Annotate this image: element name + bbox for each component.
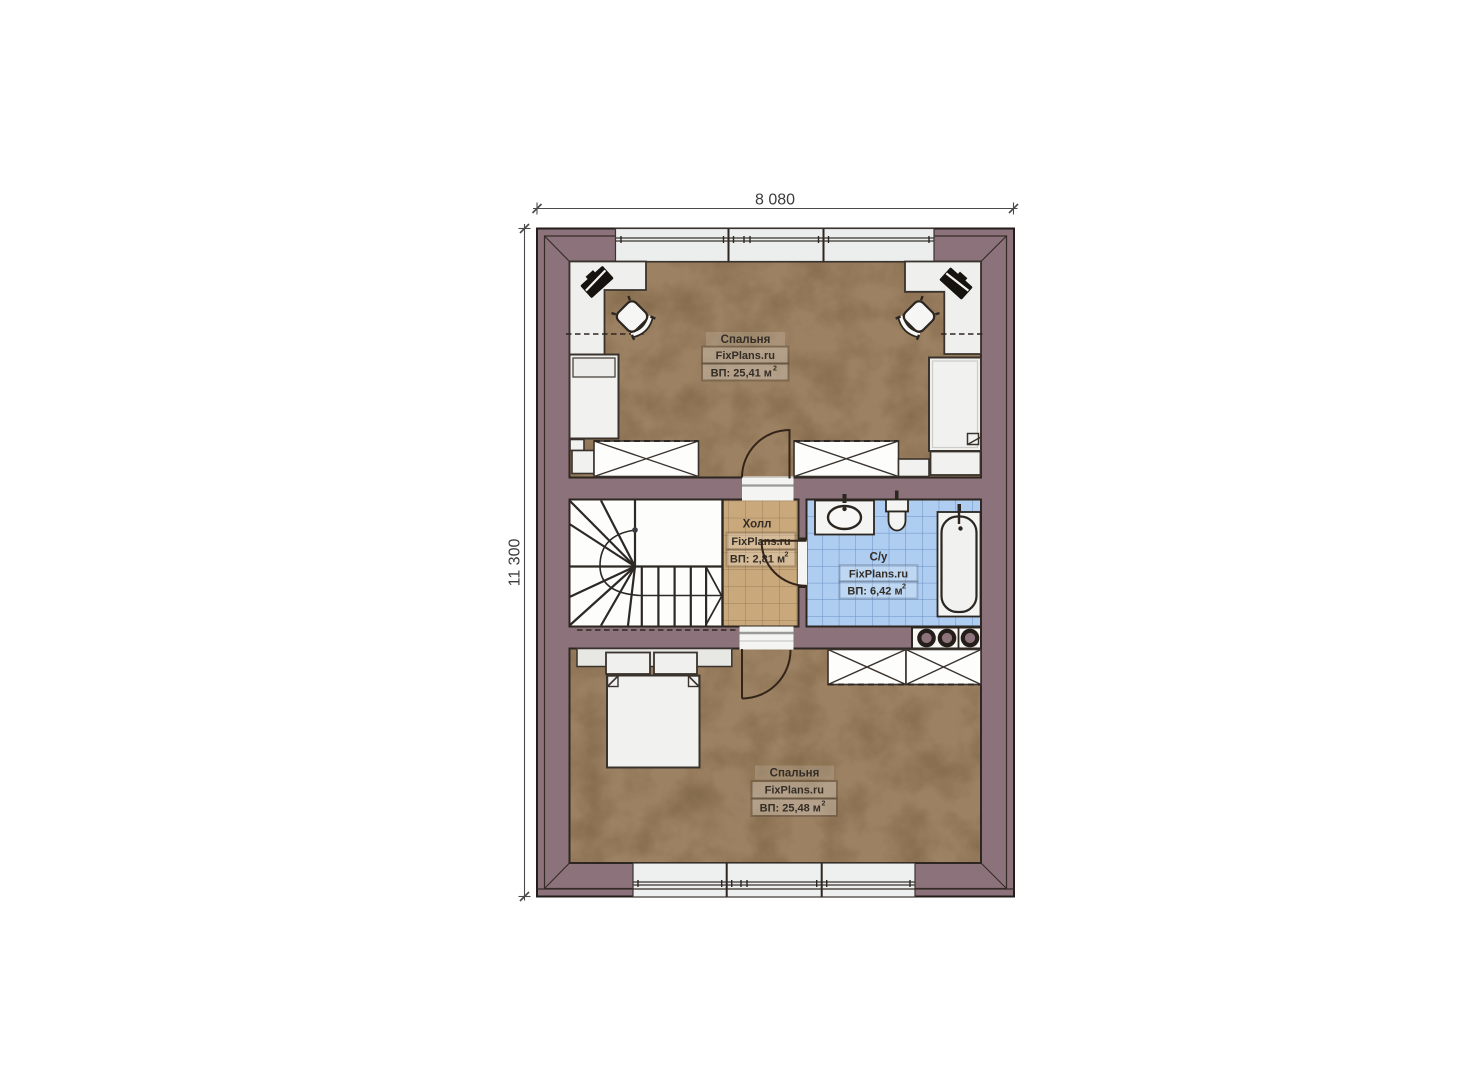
svg-text:2: 2 xyxy=(902,584,906,591)
svg-text:ВП: 2,81 м: ВП: 2,81 м xyxy=(730,554,785,566)
svg-text:2: 2 xyxy=(822,801,826,808)
svg-text:Спальня: Спальня xyxy=(770,768,820,780)
svg-text:ВП: 6,42 м: ВП: 6,42 м xyxy=(847,586,902,598)
svg-text:С/у: С/у xyxy=(870,552,889,564)
svg-text:11 300: 11 300 xyxy=(507,539,524,587)
svg-text:2: 2 xyxy=(785,552,789,559)
svg-text:ВП: 25,41 м: ВП: 25,41 м xyxy=(711,368,772,380)
svg-text:FixPlans.ru: FixPlans.ru xyxy=(716,350,775,362)
svg-text:FixPlans.ru: FixPlans.ru xyxy=(765,785,824,797)
svg-text:Спальня: Спальня xyxy=(721,334,771,346)
svg-text:ВП: 25,48 м: ВП: 25,48 м xyxy=(760,803,821,815)
svg-text:FixPlans.ru: FixPlans.ru xyxy=(849,569,908,581)
svg-text:2: 2 xyxy=(773,366,777,373)
svg-text:8 080: 8 080 xyxy=(755,192,795,209)
svg-text:Холл: Холл xyxy=(743,519,772,531)
